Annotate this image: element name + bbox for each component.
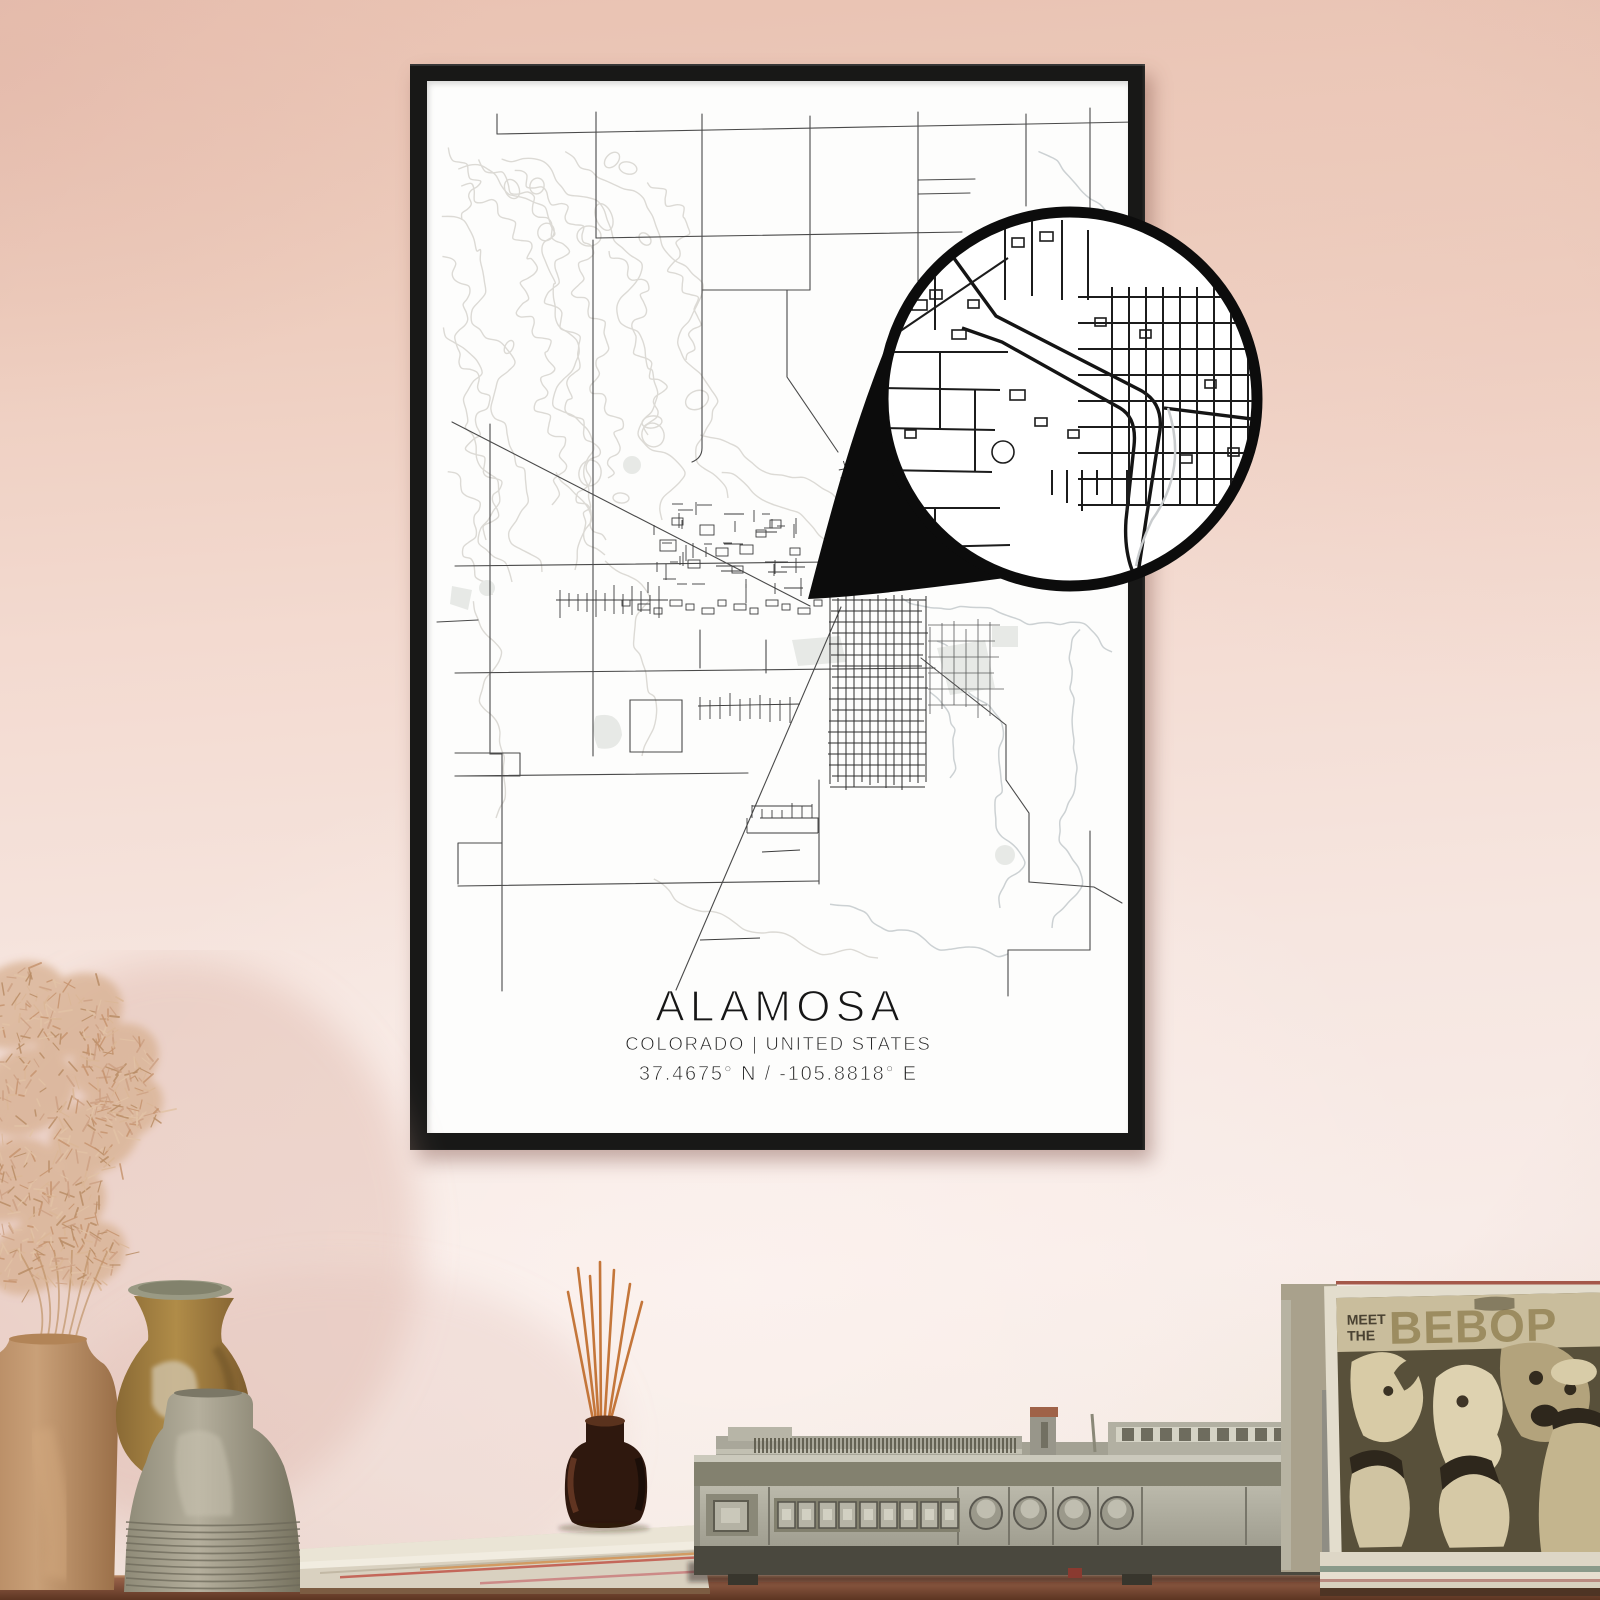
svg-text:MEET: MEET xyxy=(1347,1311,1387,1328)
svg-text:THE: THE xyxy=(1347,1327,1375,1344)
